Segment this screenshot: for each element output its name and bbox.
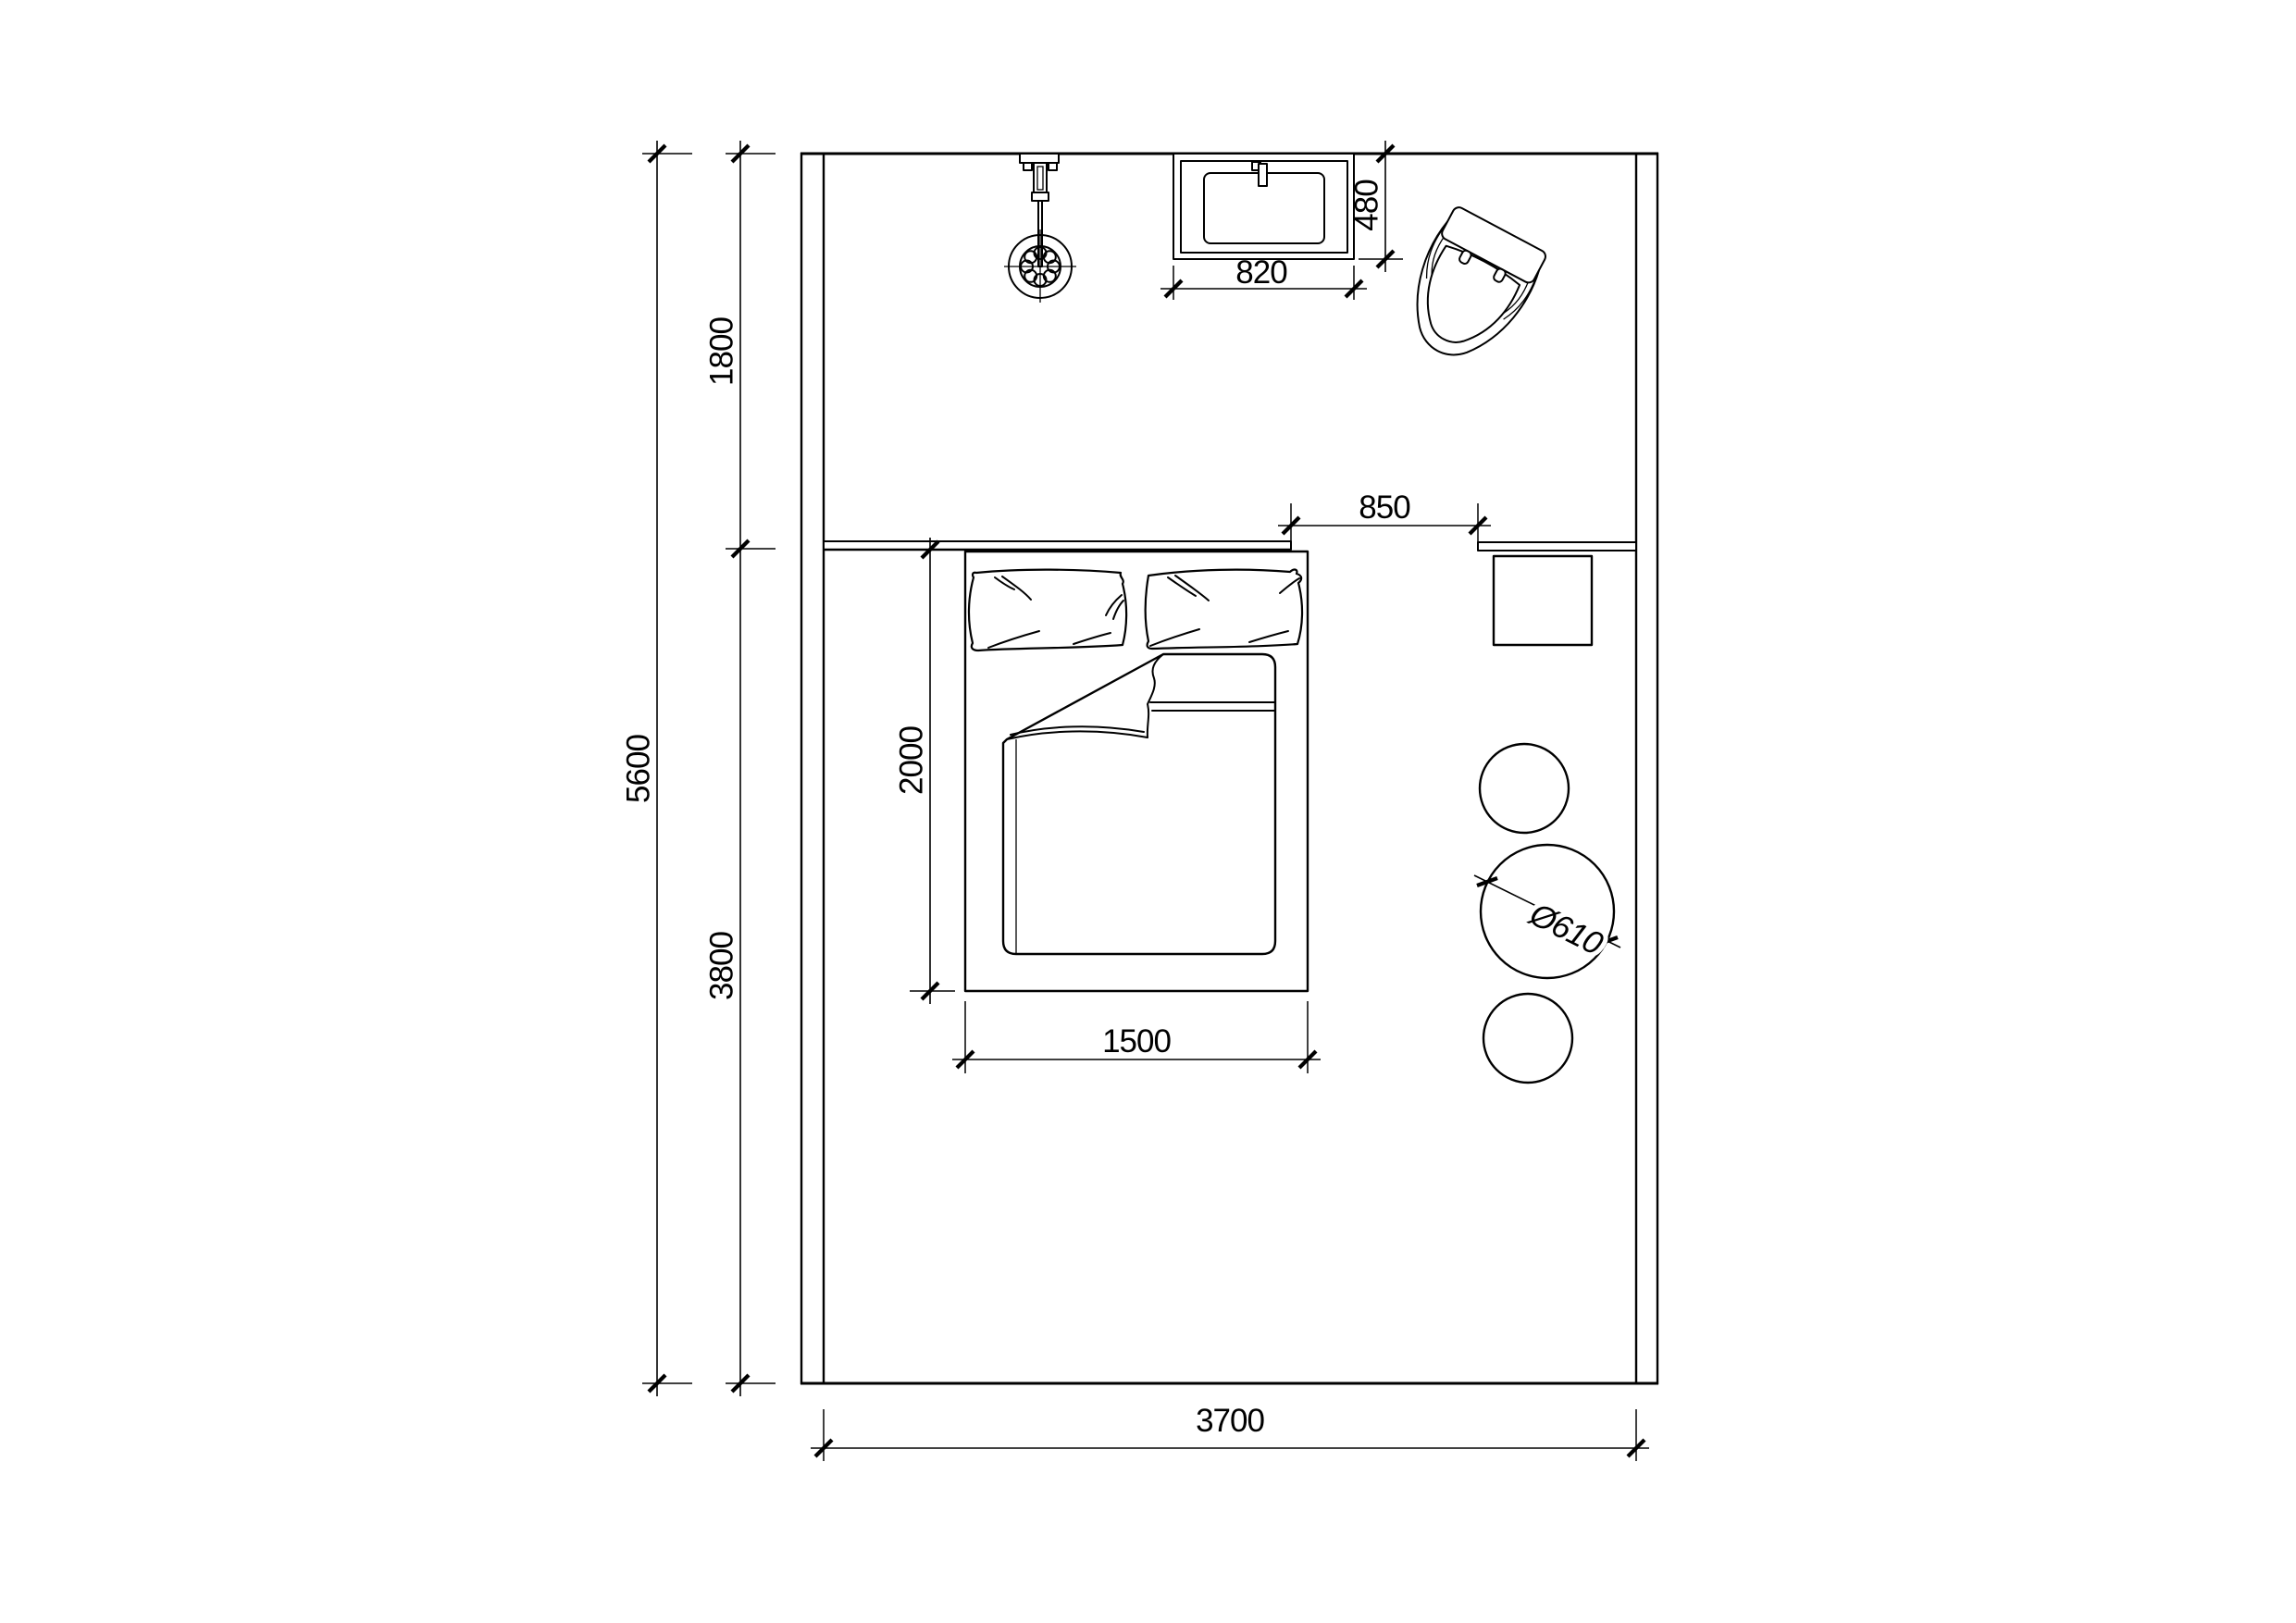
dim-bed-2000: 2000 [894, 538, 956, 1004]
floor-plan-canvas: 5600 1800 3800 3700 820 [0, 0, 2296, 1623]
dim-label-3700: 3700 [1196, 1403, 1264, 1439]
partition-rails [824, 541, 1636, 551]
dim-label-2000: 2000 [894, 726, 930, 795]
toilet-icon [1389, 204, 1549, 376]
washbasin-icon [1173, 154, 1354, 259]
dim-label-480: 480 [1349, 180, 1385, 231]
dim-label-5600: 5600 [621, 735, 657, 803]
dim-basin-480: 480 [1349, 141, 1437, 272]
dim-label-850: 850 [1359, 489, 1410, 526]
partition-right-segment [1478, 542, 1636, 551]
pillow-left [969, 570, 1126, 650]
shower-wall-bracket [1020, 154, 1059, 163]
pillow-right [1146, 570, 1302, 649]
dim-label-1500: 1500 [1102, 1023, 1171, 1059]
dim-label-820: 820 [1235, 254, 1287, 291]
stool-circle-top [1480, 744, 1569, 833]
dim-bottom-3700: 3700 [811, 1403, 1649, 1461]
square-side-table [1494, 556, 1592, 645]
dim-label-1800: 1800 [704, 317, 740, 386]
shower-arm [1034, 163, 1047, 192]
dim-left-5600: 5600 1800 3800 [621, 141, 776, 1396]
dim-basin-820: 820 [1160, 254, 1367, 300]
dim-passage-850: 850 [1278, 489, 1491, 544]
shower-head-icon [1004, 154, 1076, 303]
shower-arm-collar [1032, 192, 1049, 201]
partition-left-segment [824, 541, 1291, 550]
double-bed [965, 551, 1308, 991]
stool-circle-bottom [1483, 994, 1572, 1083]
dim-label-3800: 3800 [704, 932, 740, 1000]
basin-faucet-spout [1259, 164, 1267, 186]
dim-bed-1500: 1500 [952, 1001, 1321, 1073]
